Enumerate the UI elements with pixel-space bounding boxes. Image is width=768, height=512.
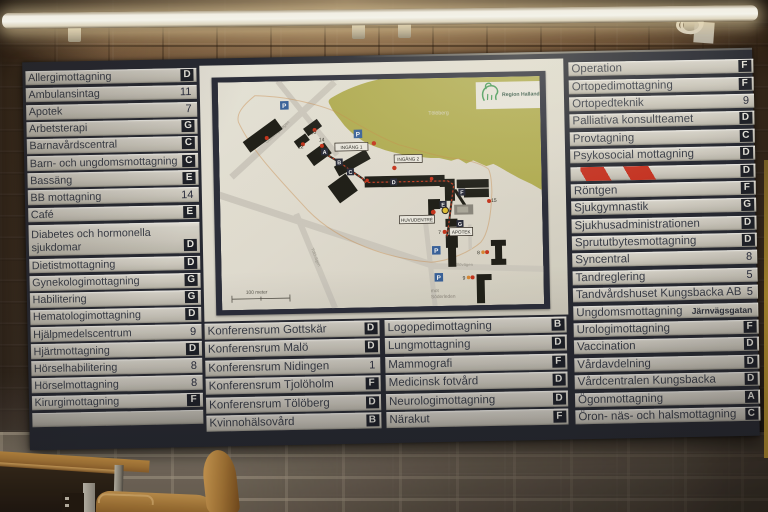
svg-text:INGÅNG 2: INGÅNG 2 bbox=[397, 155, 420, 161]
svg-text:INGÅNG 1: INGÅNG 1 bbox=[340, 143, 363, 149]
svg-text:HUVUDENTRÉ: HUVUDENTRÉ bbox=[401, 216, 433, 223]
svg-text:B: B bbox=[337, 160, 341, 166]
svg-text:A: A bbox=[323, 150, 327, 156]
svg-text:P: P bbox=[356, 131, 361, 138]
svg-text:8: 8 bbox=[477, 250, 480, 256]
svg-text:15: 15 bbox=[491, 198, 497, 204]
svg-text:100 meter: 100 meter bbox=[246, 289, 268, 295]
svg-text:Tölövägen: Tölövägen bbox=[453, 261, 473, 266]
svg-text:P: P bbox=[434, 248, 439, 255]
svg-text:C: C bbox=[348, 170, 352, 176]
svg-text:G: G bbox=[458, 221, 462, 227]
svg-text:7: 7 bbox=[438, 230, 441, 236]
svg-text:P: P bbox=[282, 103, 287, 110]
svg-text:Region Halland: Region Halland bbox=[502, 91, 540, 98]
svg-text:12: 12 bbox=[298, 144, 304, 150]
svg-text:APOTEK: APOTEK bbox=[452, 229, 472, 234]
svg-text:14: 14 bbox=[319, 137, 325, 143]
svg-text:P: P bbox=[437, 274, 442, 281]
svg-text:Tölöberg: Tölöberg bbox=[428, 110, 449, 116]
svg-text:mot: mot bbox=[431, 288, 440, 294]
svg-text:Söderleden: Söderleden bbox=[431, 293, 456, 299]
svg-text:D: D bbox=[392, 180, 396, 186]
svg-text:10: 10 bbox=[311, 130, 317, 136]
svg-text:9: 9 bbox=[463, 275, 466, 281]
